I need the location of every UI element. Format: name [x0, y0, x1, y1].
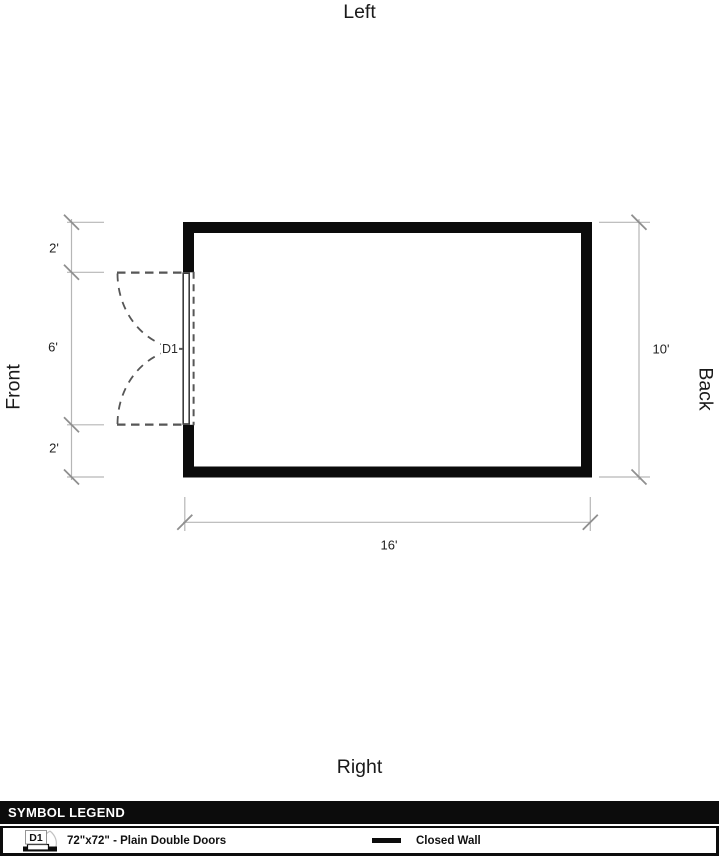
- legend-title: SYMBOL LEGEND: [0, 805, 125, 820]
- legend-item-double-doors-label: 72"x72" - Plain Double Doors: [67, 835, 226, 847]
- floor-plan-view: Left Front Back Right: [0, 0, 719, 856]
- dimension-label-bottom: 16': [381, 538, 398, 553]
- door-leaf[interactable]: [183, 273, 189, 424]
- legend-item-double-doors: D1 72"x72" - Plain Double Doors: [22, 830, 226, 852]
- dimension-label-right: 10': [653, 342, 670, 357]
- building-walls: [189, 228, 587, 473]
- legend-item-closed-wall: Closed Wall: [372, 835, 481, 847]
- double-door-icon: D1: [22, 830, 58, 852]
- floor-plan-canvas: [0, 0, 719, 856]
- dimension-label-left-top: 2': [49, 241, 59, 256]
- closed-wall-line-icon: [372, 838, 401, 843]
- door-label[interactable]: D1: [161, 342, 179, 356]
- door-swing[interactable]: [117, 272, 194, 425]
- legend-header: SYMBOL LEGEND: [0, 801, 719, 824]
- legend-item-closed-wall-label: Closed Wall: [416, 835, 481, 847]
- door-symbol-code: D1: [29, 832, 43, 844]
- dimension-label-left-bottom: 2': [49, 441, 59, 456]
- dimension-label-left-middle: 6': [48, 340, 58, 355]
- legend-row: D1 72"x72" - Plain Double Doors Closed W…: [0, 826, 719, 856]
